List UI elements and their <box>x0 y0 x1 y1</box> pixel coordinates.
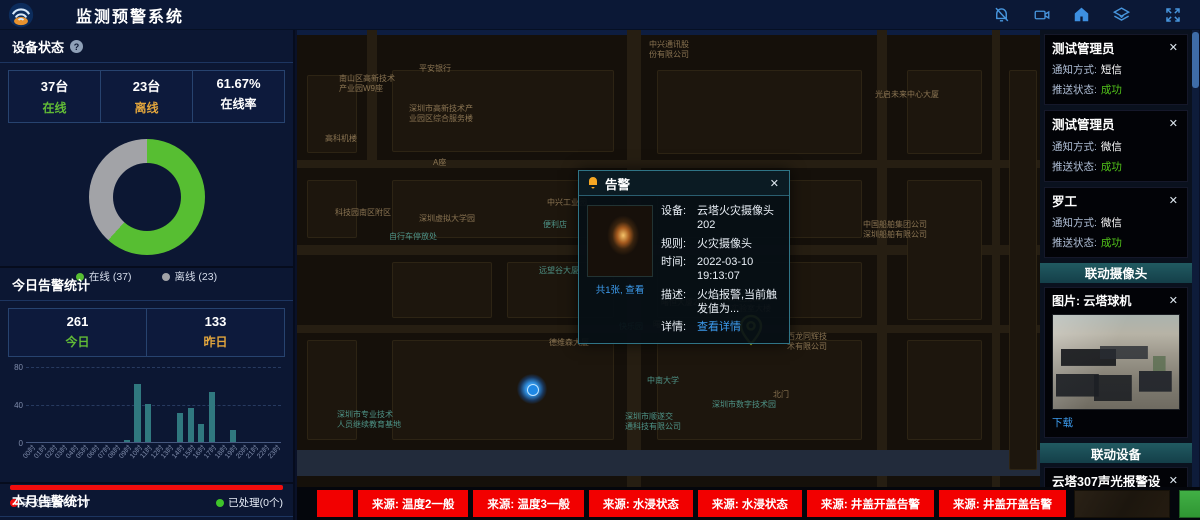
device-status-title: 设备状态 <box>12 37 64 56</box>
bar-slot-08时: 08时 <box>111 367 122 442</box>
alarm-mute-icon[interactable] <box>992 6 1012 24</box>
notification-card-1-close-icon[interactable]: ✕ <box>1167 117 1180 130</box>
bar-slot-22时: 22时 <box>260 367 271 442</box>
alert-popup: 告警 ✕ 共1张, 查看 设备:云塔火灾摄像头202规则:火灾摄像头时间:202… <box>578 170 790 344</box>
notification-card-0-row: 推送状态:成功 <box>1052 82 1180 97</box>
map-block <box>657 340 862 440</box>
alert-chip-1[interactable]: 来源: 温度3一般 <box>473 490 583 517</box>
camera-card-close-icon[interactable]: ✕ <box>1167 294 1180 307</box>
notification-card-0-close-icon[interactable]: ✕ <box>1167 41 1180 54</box>
bar-plot-area: 00时01时02时03时04时05时06时07时08时09时10时11时12时1… <box>26 367 281 443</box>
y-tick-label: 40 <box>10 401 23 410</box>
notification-card-0-top: 测试管理员✕ <box>1052 41 1180 57</box>
right-panel-scrollbar[interactable] <box>1192 30 1199 520</box>
bar-slot-05时: 05时 <box>79 367 90 442</box>
alert-popup-close-icon[interactable]: ✕ <box>768 177 781 190</box>
stat-today-label: 今日 <box>9 333 146 350</box>
alarm-bell-icon <box>587 176 599 190</box>
today-alarms-stats: 261 今日 133 昨日 <box>8 308 285 357</box>
alert-chip-3[interactable]: 来源: 水浸状态 <box>698 490 802 517</box>
linked-camera-band: 联动摄像头 <box>1040 263 1192 283</box>
map-label: 深圳市顺遂交 通科技有限公司 <box>625 412 681 431</box>
view-details-link[interactable]: 查看详情 <box>697 321 781 335</box>
page-title: 监测预警系统 <box>76 3 184 27</box>
alert-popup-body: 共1张, 查看 设备:云塔火灾摄像头202规则:火灾摄像头时间:2022-03-… <box>579 196 789 343</box>
map-label: 深圳市专业技术 人员继续教育基地 <box>337 410 401 429</box>
bar <box>198 424 204 442</box>
notification-card-2-close-icon[interactable]: ✕ <box>1167 194 1180 207</box>
linked-device-card-0-close-icon[interactable]: ✕ <box>1167 474 1180 487</box>
alert-field-label: 详情: <box>661 321 697 335</box>
map-block <box>1009 70 1037 470</box>
linked-camera-card: 图片: 云塔球机 ✕ 下载 <box>1044 287 1188 439</box>
bar-slot-16时: 16时 <box>196 367 207 442</box>
alert-chip-4[interactable]: 来源: 井盖开盖告警 <box>807 490 934 517</box>
bar-slot-01时: 01时 <box>37 367 48 442</box>
stat-yesterday-value: 133 <box>147 314 284 329</box>
stat-yesterday-label: 昨日 <box>147 333 284 350</box>
map-label: A座 <box>433 158 446 168</box>
notification-card-1-title: 测试管理员 <box>1052 117 1167 133</box>
map-label: 南山区高新技术 产业园W9座 <box>339 74 395 93</box>
notification-card-2-row: 通知方式:微信 <box>1052 215 1180 230</box>
notification-card-1-row: 推送状态:成功 <box>1052 159 1180 174</box>
alert-field-value: 火焰报警,当前触发值为... <box>697 289 781 317</box>
download-link[interactable]: 下载 <box>1052 415 1180 430</box>
help-icon[interactable]: ? <box>70 40 83 53</box>
row-value: 成功 <box>1101 159 1122 174</box>
map-road <box>367 30 377 160</box>
bar-slot-03时: 03时 <box>58 367 69 442</box>
stat-online-rate-label: 在线率 <box>193 95 284 112</box>
snapshot-view-link[interactable]: 共1张, 查看 <box>587 282 653 296</box>
device-status-header: 设备状态 ? <box>0 30 293 63</box>
notification-card-2: 罗工✕通知方式:微信推送状态:成功 <box>1044 187 1188 258</box>
bar <box>177 413 183 442</box>
map-main-road <box>297 450 1040 476</box>
bar-slot-00时: 00时 <box>26 367 37 442</box>
row-label: 通知方式: <box>1052 62 1097 77</box>
bar-slot-14时: 14时 <box>175 367 186 442</box>
map-label: 远望谷大厦 <box>539 266 579 276</box>
video-camera-icon[interactable] <box>1032 6 1052 24</box>
notification-card-0: 测试管理员✕通知方式:短信推送状态:成功 <box>1044 34 1188 105</box>
map-label: 便利店 <box>543 220 567 230</box>
row-value: 短信 <box>1101 62 1122 77</box>
bottom-camera-thumbnail[interactable] <box>1074 490 1170 518</box>
today-alarms-header: 今日告警统计 <box>0 268 293 301</box>
header-icon-group: ⌄ <box>992 6 1200 24</box>
stat-offline-value: 23台 <box>101 76 192 95</box>
bar-slot-18时: 18时 <box>217 367 228 442</box>
row-value: 微信 <box>1101 215 1122 230</box>
notification-card-2-title: 罗工 <box>1052 194 1167 210</box>
linked-devices-band: 联动设备 <box>1040 443 1192 463</box>
map-label: 北门 <box>773 390 789 400</box>
map-label: 科技园南区附区 <box>335 208 391 218</box>
stat-online-label: 在线 <box>9 99 100 116</box>
alert-field-value: 火灾摄像头 <box>697 238 781 252</box>
map-block <box>907 70 982 154</box>
top-header: 监测预警系统 ⌄ <box>0 0 1200 30</box>
map-label: 光启未来中心大厦 <box>875 90 939 100</box>
bar-slot-21时: 21时 <box>249 367 260 442</box>
month-alarms-title: 本月告警统计 <box>12 491 90 510</box>
map-label: 中国船舶集团公司 深圳船舶有限公司 <box>863 220 927 239</box>
device-status-donut-chart <box>0 131 293 263</box>
notification-card-2-row: 推送状态:成功 <box>1052 235 1180 250</box>
left-stats-panel: 设备状态 ? 37台 在线 23台 离线 61.67% 在线率 <box>0 30 295 520</box>
map-label: 深圳市高新技术产 业园区综合服务楼 <box>409 104 473 123</box>
bar <box>145 404 151 442</box>
alert-chip-5[interactable]: 来源: 井盖开盖告警 <box>939 490 1066 517</box>
fire-snapshot-image[interactable] <box>587 205 653 277</box>
notification-card-2-top: 罗工✕ <box>1052 194 1180 210</box>
bar-slot-15时: 15时 <box>185 367 196 442</box>
bottom-green-thumbnail[interactable] <box>1179 490 1200 518</box>
map-road <box>297 160 1040 168</box>
bar-slot-06时: 06时 <box>90 367 101 442</box>
alert-field-row: 规则:火灾摄像头 <box>661 238 781 252</box>
row-label: 推送状态: <box>1052 235 1097 250</box>
row-label: 推送状态: <box>1052 159 1097 174</box>
alert-field-row: 描述:火焰报警,当前触发值为... <box>661 289 781 317</box>
bar <box>188 408 194 442</box>
map-road <box>992 30 1000 487</box>
bar-slot-07时: 07时 <box>100 367 111 442</box>
alert-field-label: 设备: <box>661 205 697 233</box>
alert-field-value: 2022-03-10 19:13:07 <box>697 256 781 284</box>
notification-card-1-row: 通知方式:微信 <box>1052 139 1180 154</box>
bar-slot-23时: 23时 <box>270 367 281 442</box>
section-today-alarms: 今日告警统计 261 今日 133 昨日 80400 00时01时02时03时0… <box>0 266 293 510</box>
bar <box>209 392 215 442</box>
home-icon[interactable] <box>1072 6 1092 24</box>
alert-chip-partial[interactable] <box>317 490 353 517</box>
stat-online-rate: 61.67% 在线率 <box>193 71 284 122</box>
month-alarms-header: 本月告警统计 <box>0 484 293 517</box>
notification-card-0-title: 测试管理员 <box>1052 41 1167 57</box>
right-events-panel: 测试管理员✕通知方式:短信推送状态:成功测试管理员✕通知方式:微信推送状态:成功… <box>1040 30 1192 520</box>
today-alarms-title: 今日告警统计 <box>12 275 90 294</box>
hourly-alarm-bar-chart: 80400 00时01时02时03时04时05时06时07时08时09时10时1… <box>10 363 283 471</box>
map-cluster-marker[interactable] <box>517 374 547 404</box>
bar <box>230 430 236 442</box>
map-block <box>392 262 492 318</box>
bar-slot-10时: 10时 <box>132 367 143 442</box>
bottom-alert-bar: 来源: 温度2一般来源: 温度3一般来源: 水浸状态来源: 水浸状态来源: 井盖… <box>297 487 1200 520</box>
notification-card-0-row: 通知方式:短信 <box>1052 62 1180 77</box>
camera-image-title: 图片: 云塔球机 <box>1052 294 1167 310</box>
alert-field-label: 时间: <box>661 256 697 284</box>
stat-online: 37台 在线 <box>9 71 101 122</box>
alert-field-row: 设备:云塔火灾摄像头202 <box>661 205 781 233</box>
map-block <box>907 340 982 440</box>
bar-slot-04时: 04时 <box>69 367 80 442</box>
stat-yesterday: 133 昨日 <box>147 309 284 356</box>
scrollbar-thumb[interactable] <box>1192 32 1199 88</box>
chevron-down-icon: ⌄ <box>1117 8 1126 21</box>
map-top-strip <box>297 30 1040 35</box>
section-device-status: 设备状态 ? 37台 在线 23台 离线 61.67% 在线率 <box>0 30 293 284</box>
layers-icon[interactable]: ⌄ <box>1112 6 1144 24</box>
alert-field-label: 规则: <box>661 238 697 252</box>
alert-chip-2[interactable]: 来源: 水浸状态 <box>589 490 693 517</box>
alert-popup-header: 告警 ✕ <box>579 171 789 196</box>
camera-snapshot-image[interactable] <box>1052 314 1180 410</box>
map-label: 自行车停放处 <box>389 232 437 242</box>
alert-chip-0[interactable]: 来源: 温度2一般 <box>358 490 468 517</box>
monitoring-dashboard: 监测预警系统 ⌄ <box>0 0 1200 520</box>
y-tick-label: 80 <box>10 363 23 372</box>
notification-card-1: 测试管理员✕通知方式:微信推送状态:成功 <box>1044 110 1188 181</box>
bar-slot-19时: 19时 <box>228 367 239 442</box>
bar-slot-09时: 09时 <box>122 367 133 442</box>
map-label: 高科机楼 <box>325 134 357 144</box>
alert-popup-title: 告警 <box>605 174 762 193</box>
bar-slot-02时: 02时 <box>47 367 58 442</box>
stat-online-value: 37台 <box>9 76 100 95</box>
bar-slot-13时: 13时 <box>164 367 175 442</box>
device-status-stats: 37台 在线 23台 离线 61.67% 在线率 <box>8 70 285 123</box>
section-month-alarms: 本月告警统计 763 1146 <box>0 482 293 520</box>
donut-chart <box>89 139 205 255</box>
stat-offline: 23台 离线 <box>101 71 193 122</box>
stat-online-rate-value: 61.67% <box>193 76 284 91</box>
bar <box>124 440 130 442</box>
fullscreen-toggle-icon[interactable] <box>1164 6 1184 24</box>
alert-field-value: 云塔火灾摄像头202 <box>697 205 781 233</box>
y-tick-label: 0 <box>10 439 23 448</box>
row-value: 成功 <box>1101 82 1122 97</box>
alert-field-row: 时间:2022-03-10 19:13:07 <box>661 256 781 284</box>
alert-field-label: 描述: <box>661 289 697 317</box>
map-block <box>657 70 862 154</box>
map-label: 西龙同辉技 术有限公司 <box>787 332 827 351</box>
map-label: 中南大学 <box>647 376 679 386</box>
stat-today: 261 今日 <box>9 309 147 356</box>
bar-slot-20时: 20时 <box>239 367 250 442</box>
row-value: 微信 <box>1101 139 1122 154</box>
map-label: 中兴通讯股 份有限公司 <box>649 40 689 59</box>
bar-slot-12时: 12时 <box>154 367 165 442</box>
row-label: 推送状态: <box>1052 82 1097 97</box>
bar <box>134 384 140 442</box>
map-label: 深圳虚拟大学园 <box>419 214 475 224</box>
alert-thumb-column: 共1张, 查看 <box>587 205 653 335</box>
row-label: 通知方式: <box>1052 215 1097 230</box>
notification-card-1-top: 测试管理员✕ <box>1052 117 1180 133</box>
map-label: 平安银行 <box>419 64 451 74</box>
row-label: 通知方式: <box>1052 139 1097 154</box>
alert-field-row: 详情:查看详情 <box>661 321 781 335</box>
map-block <box>392 340 614 440</box>
row-value: 成功 <box>1101 235 1122 250</box>
map-block <box>907 180 982 320</box>
stat-today-value: 261 <box>9 314 146 329</box>
bar-slot-11时: 11时 <box>143 367 154 442</box>
alert-field-list: 设备:云塔火灾摄像头202规则:火灾摄像头时间:2022-03-10 19:13… <box>661 205 781 335</box>
map-label: 深圳市数字技术园 <box>712 400 776 410</box>
stat-offline-label: 离线 <box>101 99 192 116</box>
app-logo-icon <box>8 2 34 28</box>
bar-slot-17时: 17时 <box>207 367 218 442</box>
